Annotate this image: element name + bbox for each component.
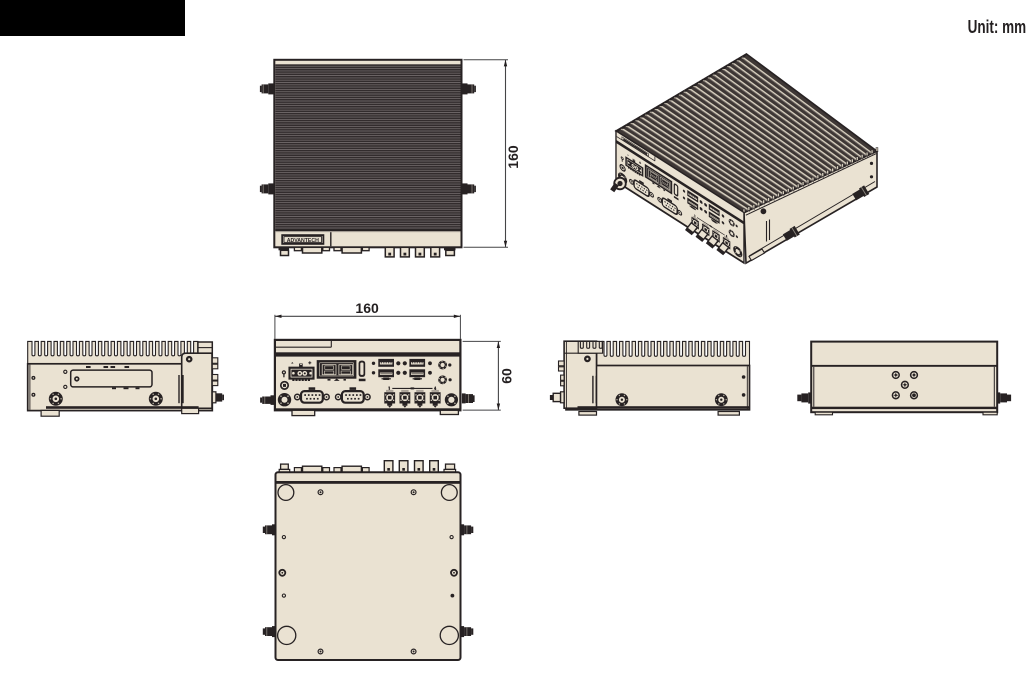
svg-text:ADVANTECH: ADVANTECH — [287, 238, 319, 244]
svg-text:160: 160 — [355, 300, 379, 316]
svg-text:60: 60 — [498, 368, 514, 384]
svg-text:160: 160 — [505, 145, 521, 169]
